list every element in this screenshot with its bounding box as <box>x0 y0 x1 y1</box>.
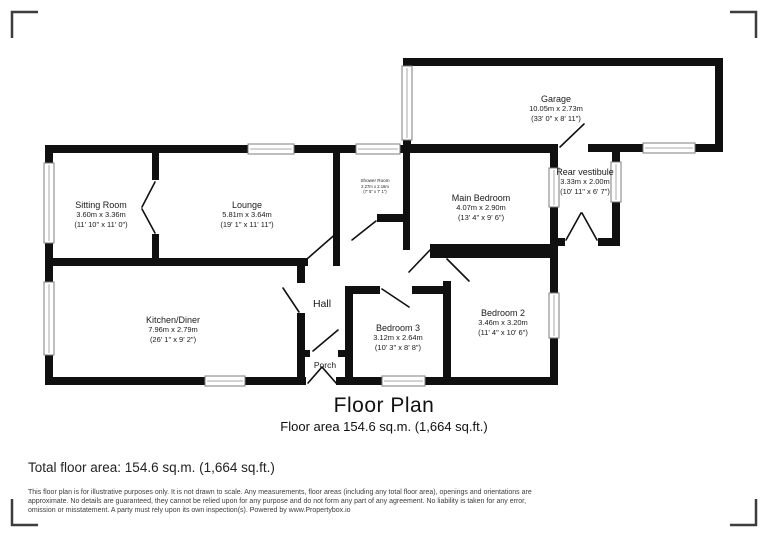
page-title: Floor Plan <box>0 394 768 418</box>
floor-area-subtitle: Floor area 154.6 sq.m. (1,664 sq.ft.) <box>0 419 768 434</box>
room-name: Main Bedroom <box>452 193 511 203</box>
room-metric: 3.12m x 2.64m <box>373 333 423 343</box>
room-name: Shower Room <box>360 178 389 184</box>
room-imperial: (26' 1" x 9' 2") <box>146 335 200 345</box>
room-name: Rear vestibule <box>553 167 617 177</box>
total-floor-area: Total floor area: 154.6 sq.m. (1,664 sq.… <box>28 460 275 475</box>
room-name: Hall <box>313 299 331 309</box>
room-bedroom-3: Bedroom 3 3.12m x 2.64m (10' 3" x 8' 8") <box>373 323 423 352</box>
wall-mainbedroom-left <box>403 145 410 250</box>
door-bedroom2-leaf <box>447 259 469 281</box>
room-metric: 3.46m x 3.20m <box>478 318 528 328</box>
room-imperial: (11' 4" x 10' 6") <box>478 328 528 338</box>
room-garage: Garage 10.05m x 2.73m (33' 0" x 8' 11") <box>529 94 583 123</box>
wall-bedrooms-divider <box>443 281 451 385</box>
room-name: Porch <box>314 360 336 370</box>
room-name: Kitchen/Diner <box>146 315 200 325</box>
corner-brackets <box>12 12 756 525</box>
room-porch: Porch <box>314 360 336 370</box>
door-rear-leaf-b <box>582 213 597 240</box>
door-shower-leaf <box>352 221 376 240</box>
room-metric: 10.05m x 2.73m <box>529 104 583 114</box>
room-imperial: (11' 10" x 11' 0") <box>74 220 127 230</box>
opening-rear-door <box>565 237 598 247</box>
wall-garage-top <box>403 58 723 66</box>
room-metric: 3.60m x 3.36m <box>74 210 127 220</box>
room-imperial: (19' 1" x 11' 11") <box>220 220 273 230</box>
wall-kitchen-top <box>45 258 308 266</box>
wall-hall-right <box>345 286 353 385</box>
wall-mainbedroom-bottom <box>430 244 558 258</box>
room-name: Bedroom 2 <box>478 308 528 318</box>
room-rear-vestibule: Rear vestibule 3.33m x 2.00m (10' 11" x … <box>553 167 617 196</box>
room-lounge: Lounge 5.81m x 3.64m (19' 1" x 11' 11") <box>220 200 273 229</box>
room-imperial: (7' 5" x 7' 1") <box>360 189 389 194</box>
room-imperial: (10' 3" x 8' 8") <box>373 343 423 353</box>
disclaimer-line: approximate. No details are guaranteed, … <box>28 497 532 506</box>
room-sitting-room: Sitting Room 3.60m x 3.36m (11' 10" x 11… <box>74 200 127 229</box>
room-shower-room: Shower Room 2.27m x 2.16m (7' 5" x 7' 1"… <box>360 178 389 194</box>
door-rear-leaf-a <box>566 213 581 240</box>
room-main-bedroom: Main Bedroom 4.07m x 2.90m (13' 4" x 9' … <box>452 193 511 222</box>
corner-bracket-top-left <box>12 12 38 38</box>
door-hall-porch-leaf <box>313 330 338 351</box>
room-name: Lounge <box>220 200 273 210</box>
room-hall: Hall <box>313 299 331 309</box>
room-metric: 3.33m x 2.00m <box>553 177 617 187</box>
room-metric: 4.07m x 2.90m <box>452 203 511 213</box>
room-imperial: (10' 11" x 6' 7") <box>553 187 617 197</box>
room-bedroom-2: Bedroom 2 3.46m x 3.20m (11' 4" x 10' 6"… <box>478 308 528 337</box>
room-name: Bedroom 3 <box>373 323 423 333</box>
corner-bracket-top-right <box>730 12 756 38</box>
wall-garage-right <box>715 58 723 152</box>
floor-plan-drawing <box>0 0 768 537</box>
room-imperial: (33' 0" x 8' 11") <box>529 114 583 124</box>
wall-lounge-right <box>333 145 340 266</box>
room-imperial: (13' 4" x 9' 6") <box>452 213 511 223</box>
floor-plan-page: Sitting Room 3.60m x 3.36m (11' 10" x 11… <box>0 0 768 537</box>
room-name: Garage <box>529 94 583 104</box>
door-mainbedroom-leaf <box>409 250 430 272</box>
room-metric: 5.81m x 3.64m <box>220 210 273 220</box>
disclaimer-line: This floor plan is for illustrative purp… <box>28 488 532 497</box>
disclaimer: This floor plan is for illustrative purp… <box>28 488 532 515</box>
corner-bracket-bottom-right <box>730 499 756 525</box>
disclaimer-line: omission or misstatement. A party must r… <box>28 506 532 515</box>
room-name: Sitting Room <box>74 200 127 210</box>
room-kitchen-diner: Kitchen/Diner 7.96m x 2.79m (26' 1" x 9'… <box>146 315 200 344</box>
room-metric: 7.96m x 2.79m <box>146 325 200 335</box>
